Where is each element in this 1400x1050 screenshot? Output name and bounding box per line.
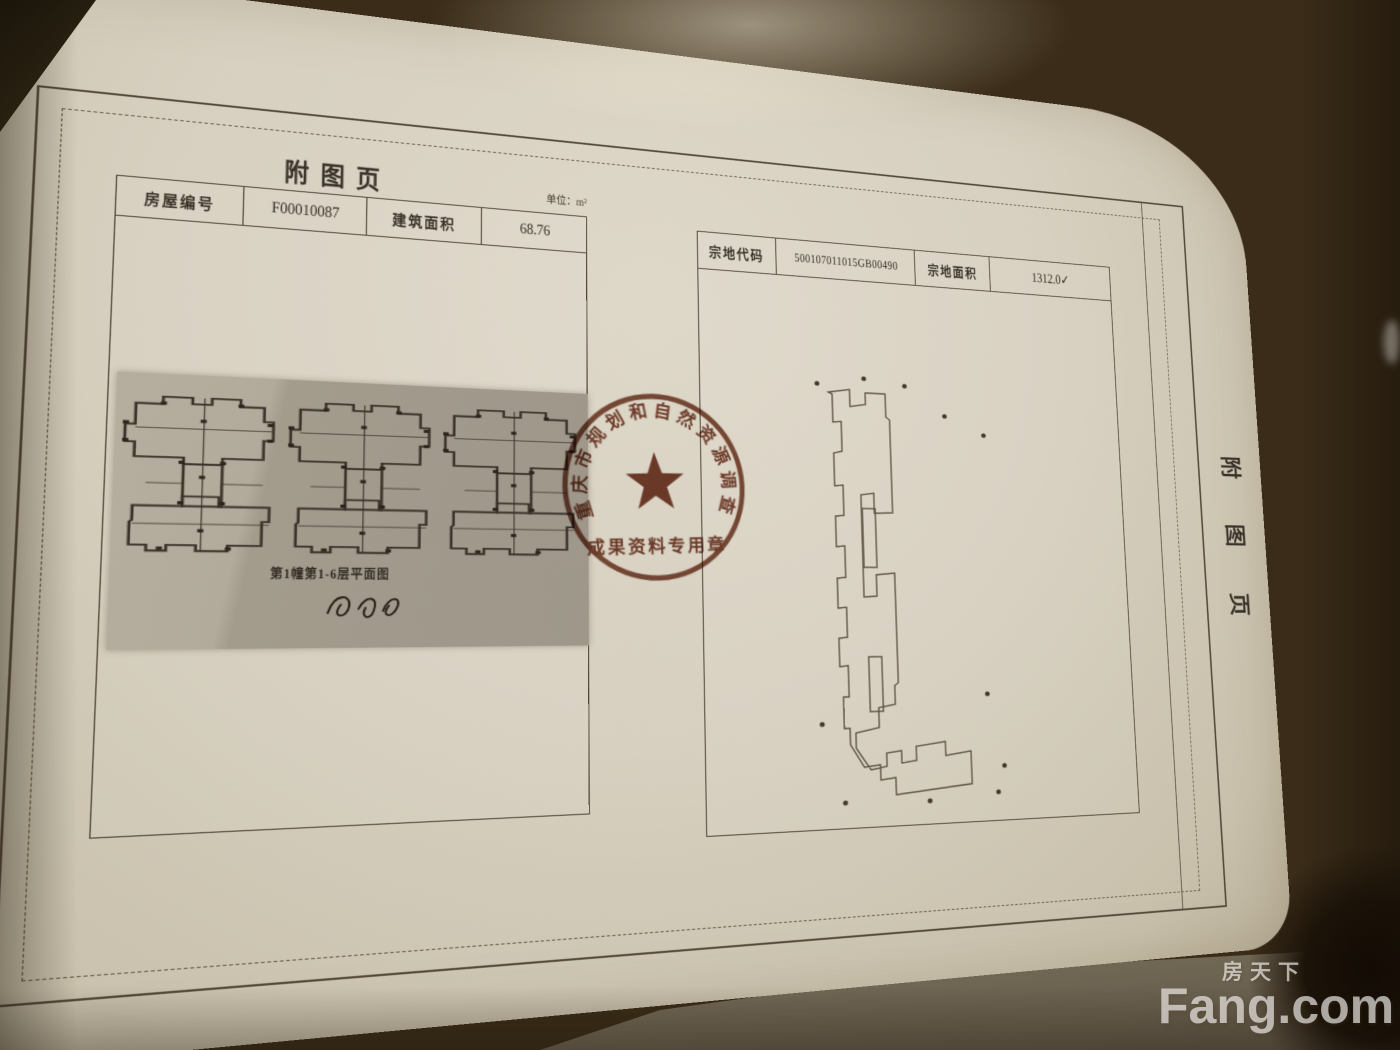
house-info-box: 房屋编号 F00010087 建筑面积 68.76 [89, 175, 590, 839]
side-title-char: 图 [1222, 523, 1245, 552]
official-stamp: 重庆市规划和自然资源调查监测院 成果资料专用章 [553, 387, 755, 590]
floor-plan-caption: 第1幢第1-6层平面图 [267, 562, 393, 583]
watermark: 房天下 Fang.com [1158, 956, 1400, 1027]
parcel-info-box: 宗地代码 500107011015GB00490 宗地面积 1312.0✓ [697, 231, 1140, 837]
floor-area-label-cell: 建筑面积 [367, 198, 482, 244]
light-reflection [1384, 320, 1400, 364]
stamp-arc-text: 重庆市规划和自然资源调查监测院 [553, 387, 740, 525]
svg-text:重庆市规划和自然资源调查监测院: 重庆市规划和自然资源调查监测院 [553, 387, 740, 525]
parcel-area-label-cell: 宗地面积 [915, 251, 991, 291]
photo-of-document: 附图页 单位：m² 房屋编号 F00010087 建筑面积 68.76 [0, 0, 1400, 1050]
parcel-outline-drawing [805, 370, 1011, 812]
parcel-code-label-cell: 宗地代码 [698, 232, 777, 274]
floor-plan-panel: 第1幢第1-6层平面图 [106, 371, 589, 650]
side-title-char: 页 [1227, 592, 1250, 621]
floor-area-value-cell: 68.76 [482, 208, 586, 252]
star-icon [625, 452, 685, 509]
document-page: 附图页 单位：m² 房屋编号 F00010087 建筑面积 68.76 [0, 85, 1227, 1008]
stamp-bottom-text: 成果资料专用章 [587, 535, 727, 559]
side-title-char: 附 [1218, 455, 1241, 484]
fang-logo-text: Fang.com [1158, 986, 1400, 1027]
surveyor-signature [318, 584, 410, 637]
